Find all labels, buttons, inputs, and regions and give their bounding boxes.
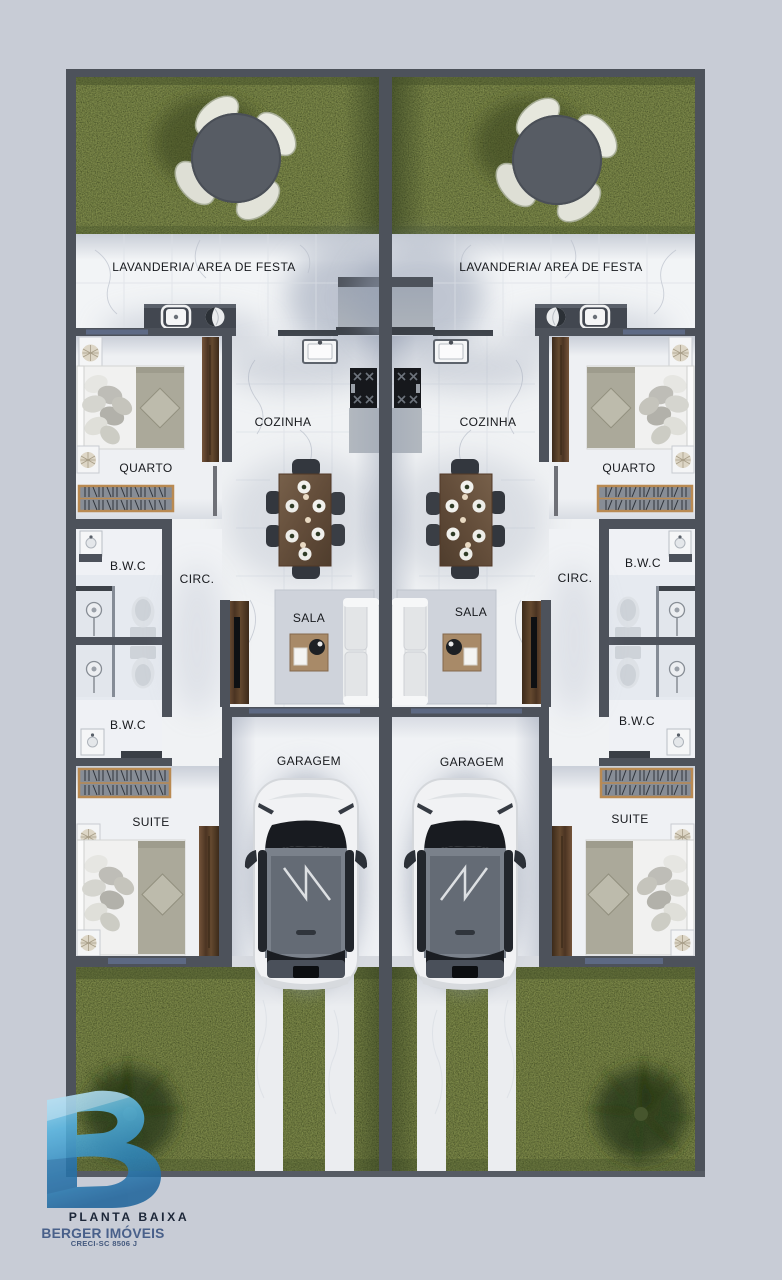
svg-text:SUITE: SUITE [132, 815, 169, 829]
svg-text:GARAGEM: GARAGEM [277, 754, 341, 768]
svg-text:SALA: SALA [455, 605, 487, 619]
svg-text:LAVANDERIA/ AREA DE FESTA: LAVANDERIA/ AREA DE FESTA [459, 260, 642, 274]
svg-text:B.W.C: B.W.C [625, 556, 661, 570]
svg-text:B.W.C: B.W.C [110, 559, 146, 573]
svg-text:COZINHA: COZINHA [460, 415, 517, 429]
svg-text:PLANTA BAIXA: PLANTA BAIXA [69, 1210, 190, 1224]
svg-text:QUARTO: QUARTO [119, 461, 172, 475]
svg-text:CIRC.: CIRC. [558, 571, 593, 585]
svg-text:SALA: SALA [293, 611, 325, 625]
svg-text:SUITE: SUITE [611, 812, 648, 826]
svg-text:QUARTO: QUARTO [602, 461, 655, 475]
svg-text:B.W.C: B.W.C [619, 714, 655, 728]
svg-text:CRECI-SC 8506 J: CRECI-SC 8506 J [71, 1239, 138, 1248]
svg-text:COZINHA: COZINHA [255, 415, 312, 429]
svg-text:GARAGEM: GARAGEM [440, 755, 504, 769]
svg-text:LAVANDERIA/ AREA DE FESTA: LAVANDERIA/ AREA DE FESTA [112, 260, 295, 274]
svg-text:B.W.C: B.W.C [110, 718, 146, 732]
svg-text:CIRC.: CIRC. [180, 572, 215, 586]
